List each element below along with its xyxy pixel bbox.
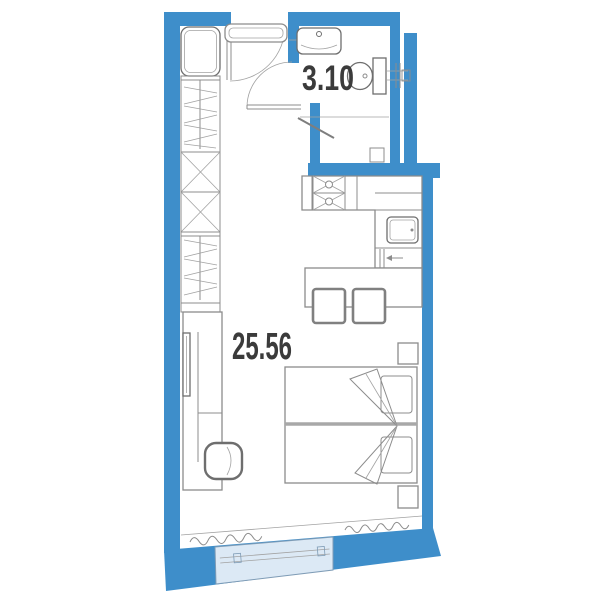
burner-icon xyxy=(326,181,333,188)
shaft-pillar xyxy=(404,33,417,166)
stool xyxy=(313,289,345,323)
window-block xyxy=(215,537,333,584)
desk-chair xyxy=(205,443,242,479)
washing-machine xyxy=(370,148,384,162)
wardrobe xyxy=(181,27,220,312)
nightstand xyxy=(398,343,418,364)
storage-box-x xyxy=(181,152,220,192)
bathroom-wall-left-lower xyxy=(310,103,320,165)
chair-outline xyxy=(205,443,242,479)
clothes-rail xyxy=(181,76,220,152)
floor-plan-canvas: 3.10 xyxy=(0,0,600,600)
bathroom-area-label: 3.10 xyxy=(302,59,354,98)
stool xyxy=(353,289,385,323)
kitchen xyxy=(302,176,422,323)
burner-icon xyxy=(326,198,333,205)
left-wall xyxy=(164,12,180,553)
nightstand xyxy=(398,486,418,508)
floor-plan: 3.10 xyxy=(0,0,600,600)
bathroom-door-swing-arc xyxy=(247,62,292,107)
bed-area xyxy=(285,343,418,508)
toilet-tank xyxy=(373,58,386,94)
shelf-ledge xyxy=(181,303,220,312)
clothes-rail xyxy=(181,232,220,303)
bathroom-wall-right xyxy=(390,26,400,166)
right-wall xyxy=(422,176,433,533)
top-wall-right xyxy=(288,12,400,26)
kitchen-sink-drain-icon xyxy=(411,229,414,232)
main-area-label: 25.56 xyxy=(232,326,292,368)
wardrobe-cabinet xyxy=(181,27,220,76)
storage-box-x xyxy=(181,192,220,232)
entrance-door-leaf xyxy=(225,24,287,42)
window xyxy=(215,537,333,584)
